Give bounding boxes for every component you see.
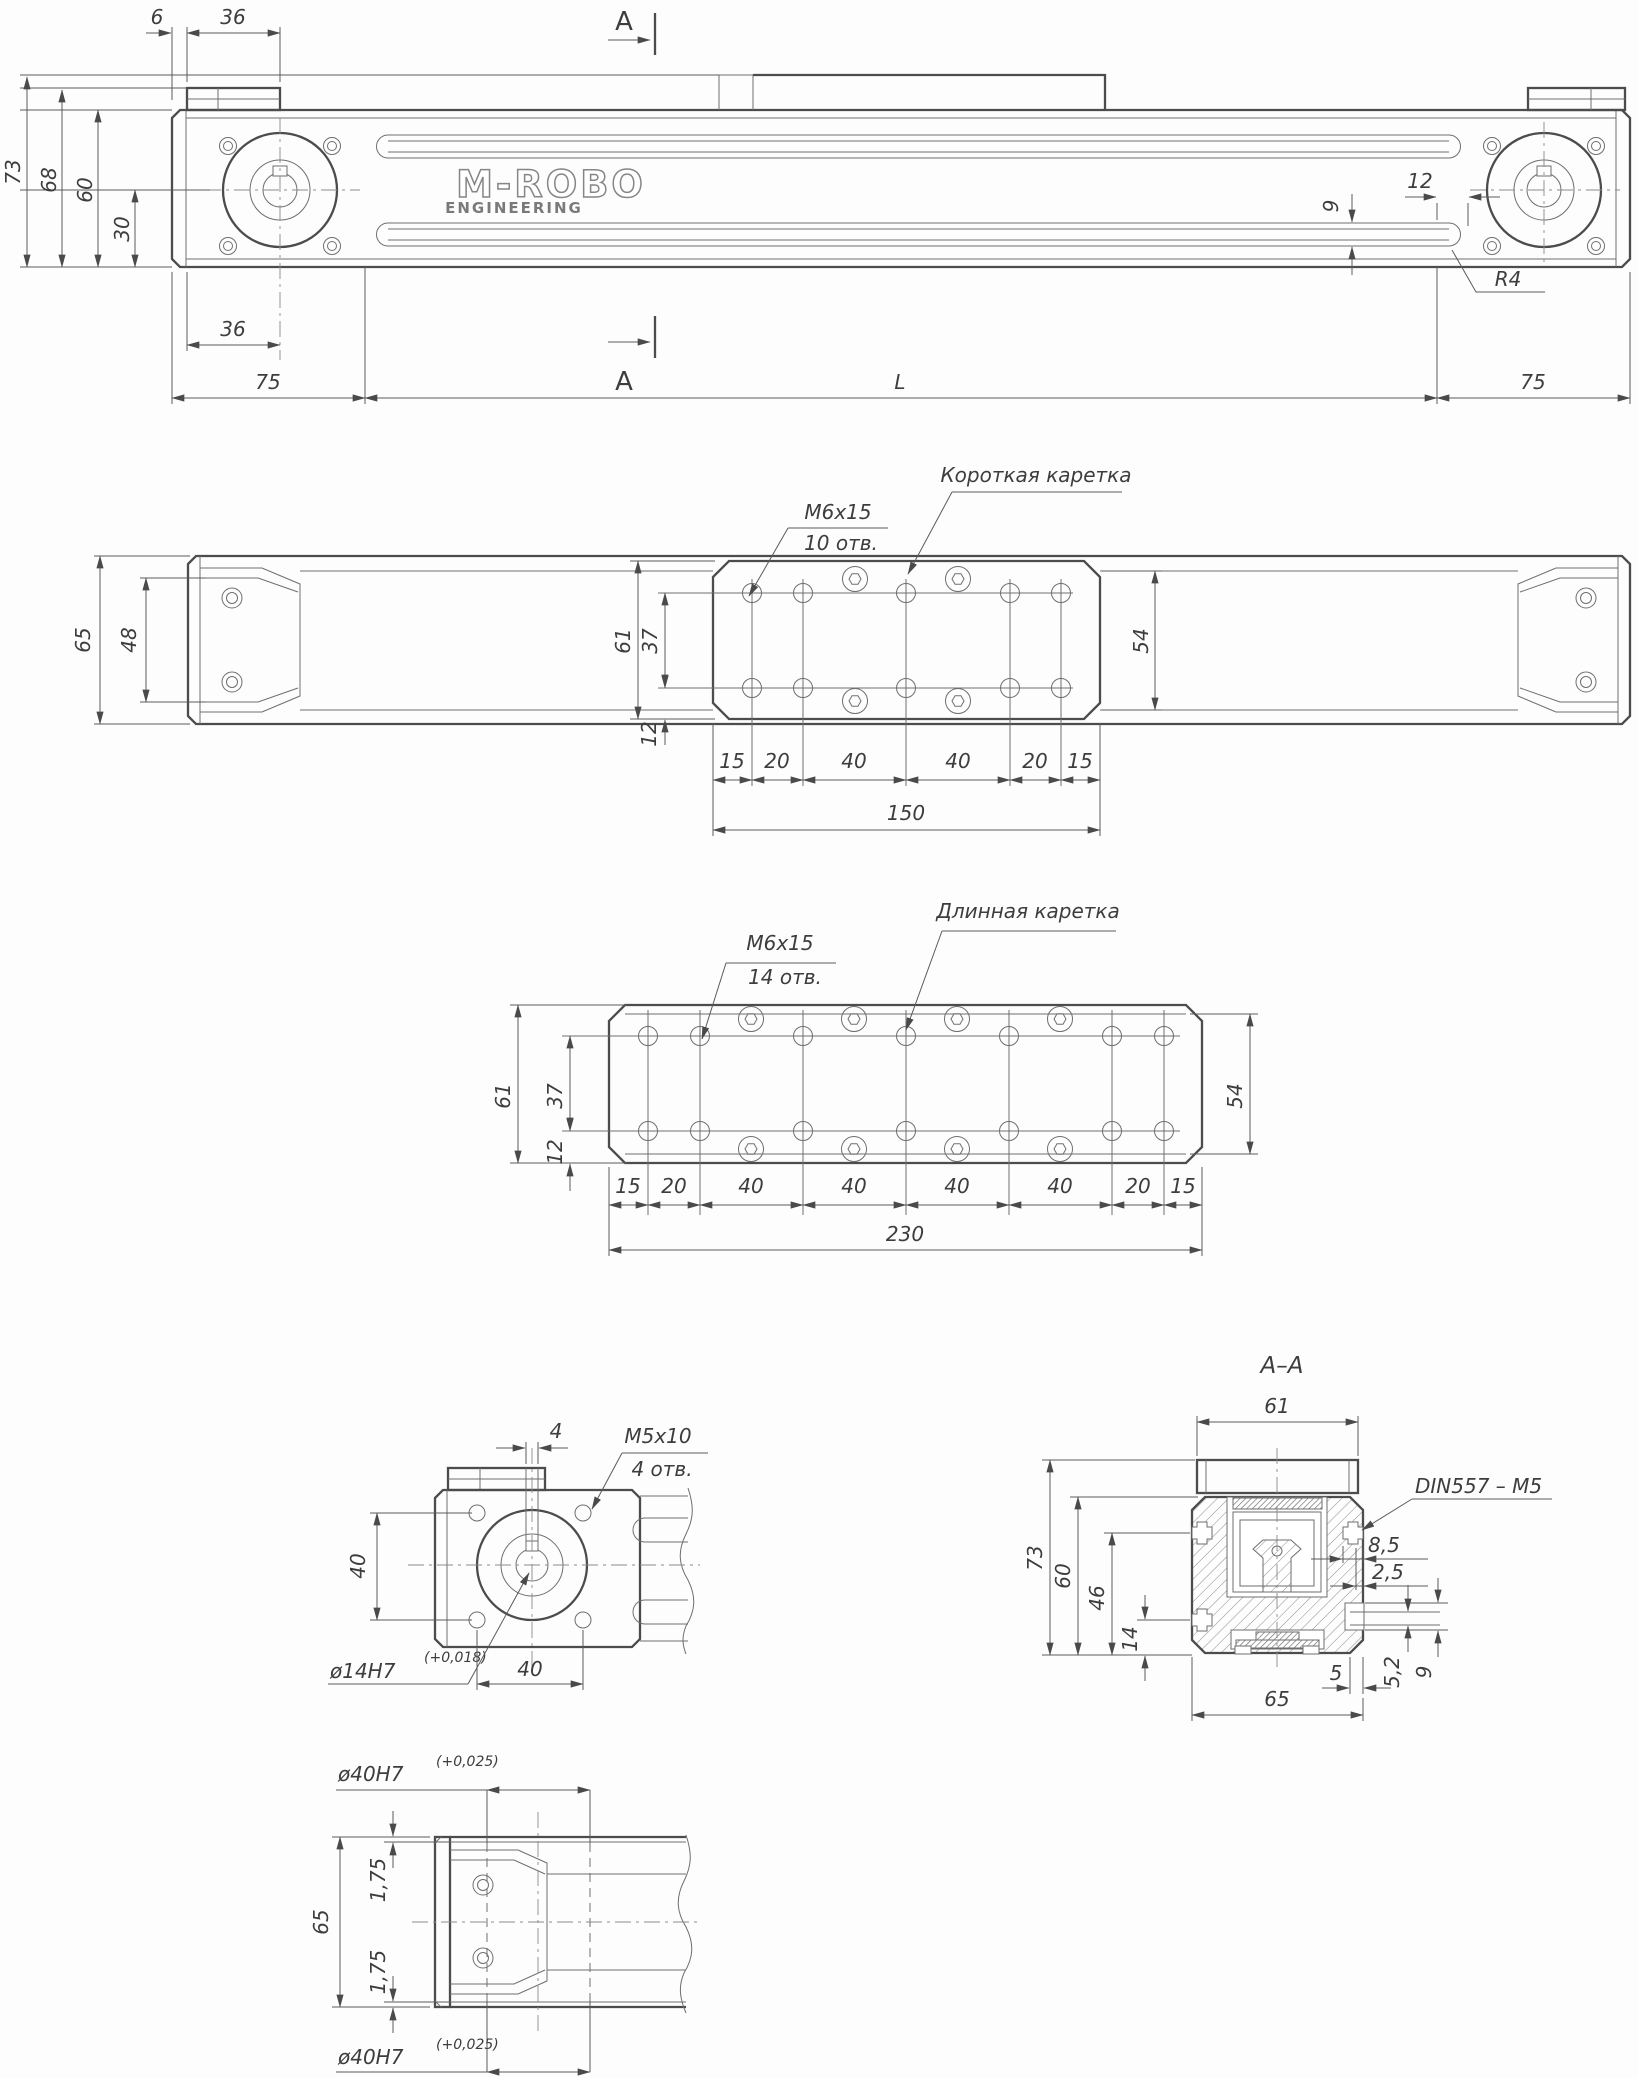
label-4-holes: 4 отв. [631, 1457, 692, 1481]
dim-37-long: 37 [543, 1083, 567, 1109]
label-bore-14: ø14H7 [329, 1659, 396, 1683]
dim-60-sec: 60 [1051, 1563, 1075, 1588]
belt-slot-bottom [377, 223, 1461, 246]
chain-20b: 20 [1022, 749, 1047, 773]
dim-52-sec: 5,2 [1380, 1656, 1404, 1688]
plan-short-dimensions: 65 48 61 37 12 54 15 20 40 40 20 15 150 [71, 556, 1155, 830]
dim-73-sec: 73 [1023, 1545, 1047, 1570]
section-mark-top: A [608, 7, 655, 55]
front-dimensions: 6 36 73 68 60 30 36 75 L 75 12 9 R4 [1, 5, 1630, 398]
lchain-20b: 20 [1125, 1174, 1150, 1198]
end-cap-right [1518, 568, 1618, 712]
dim-5-sec: 5 [1330, 1661, 1343, 1685]
chain-40a: 40 [841, 749, 866, 773]
dim-9: 9 [1319, 200, 1343, 213]
dim-R4: R4 [1495, 267, 1522, 291]
belt-slot-top [377, 135, 1461, 158]
idler-end-view: 65 1,75 1,75 ø40H7 (+0,025) ø40H7 (+0,02… [309, 1754, 700, 2072]
lchain-40a: 40 [738, 1174, 763, 1198]
break-line [680, 1488, 694, 1654]
dim-12: 12 [637, 721, 661, 746]
dim-65-idler: 65 [309, 1909, 333, 1934]
long-carriage-dimensions: 61 37 12 54 15 20 40 40 40 40 20 15 230 [491, 1005, 1250, 1250]
drawing-sheet: M-ROBO ENGINEERING A A [0, 0, 1638, 2078]
label-bore-40-top-tol: (+0,025) [436, 1754, 499, 1770]
dim-65-sec: 65 [1264, 1687, 1289, 1711]
label-m5x10: M5x10 [624, 1424, 691, 1448]
end-cap-left [200, 568, 300, 712]
dim-6: 6 [151, 5, 164, 29]
dim-65: 65 [71, 627, 95, 652]
label-long-carriage: Длинная каретка [935, 899, 1120, 923]
front-extension-lines [20, 27, 1630, 404]
lchain-15b: 15 [1170, 1174, 1195, 1198]
chain-20a: 20 [764, 749, 789, 773]
label-m6x15: M6x15 [804, 500, 871, 524]
dim-61: 61 [611, 628, 635, 653]
long-carriage [562, 1005, 1202, 1215]
dim-54: 54 [1129, 628, 1153, 653]
label-14-holes: 14 отв. [748, 965, 822, 989]
dim-36-top: 36 [220, 5, 245, 29]
dim-25-sec: 2,5 [1372, 1560, 1404, 1584]
section-letter-bottom: A [615, 367, 633, 397]
label-din557: DIN557 – M5 [1415, 1474, 1542, 1498]
dim-175-top: 1,75 [366, 1858, 390, 1903]
lchain-40d: 40 [1047, 1174, 1072, 1198]
label-short-carriage: Короткая каретка [940, 463, 1131, 487]
section-aa-view: A–A DIN557 – M5 [1023, 1353, 1552, 1721]
din557-callout: DIN557 – M5 [1362, 1474, 1552, 1530]
dim-85-sec: 8,5 [1368, 1533, 1400, 1557]
label-m6x15-long: M6x15 [746, 931, 813, 955]
long-carriage-callouts: M6x15 14 отв. Длинная каретка [702, 899, 1120, 1039]
dim-61-long: 61 [491, 1083, 515, 1108]
lchain-40b: 40 [841, 1174, 866, 1198]
dim-12: 12 [1407, 169, 1432, 193]
dim-61-sec: 61 [1264, 1394, 1289, 1418]
cad-drawing: M-ROBO ENGINEERING A A [0, 0, 1638, 2078]
dim-48: 48 [117, 627, 141, 652]
motor-end-view: M5x10 4 отв. ø14H7 (+0,018) 4 40 40 [328, 1419, 708, 1690]
front-view: M-ROBO ENGINEERING A A [1, 5, 1630, 404]
long-carriage-view: M6x15 14 отв. Длинная каретка 61 37 12 5… [491, 899, 1258, 1256]
dim-37: 37 [638, 628, 662, 654]
short-carriage-callouts: M6x15 10 отв. Короткая каретка [749, 463, 1132, 596]
motor-end-callouts: M5x10 4 отв. ø14H7 (+0,018) [328, 1424, 708, 1684]
dim-54-long: 54 [1223, 1083, 1247, 1108]
dim-14-sec: 14 [1118, 1626, 1142, 1651]
lchain-20a: 20 [661, 1174, 686, 1198]
dim-175-bottom: 1,75 [366, 1950, 390, 1995]
section-letter-top: A [615, 7, 633, 37]
dim-4-key: 4 [550, 1419, 563, 1443]
section-mark-bottom: A [608, 316, 655, 397]
dim-60: 60 [73, 177, 97, 202]
label-bore-40-top: ø40H7 [337, 1762, 404, 1786]
dim-12-long: 12 [543, 1139, 567, 1164]
dim-230: 230 [886, 1222, 924, 1246]
dim-40-h: 40 [517, 1657, 542, 1681]
dim-75-right: 75 [1520, 370, 1545, 394]
label-bore-40-bottom-tol: (+0,025) [436, 2037, 499, 2053]
plan-view-short-carriage: M6x15 10 отв. Короткая каретка [71, 463, 1630, 836]
dim-75-left: 75 [255, 370, 280, 394]
motor-end-dimensions: 4 40 40 [346, 1419, 583, 1684]
dim-46-sec: 46 [1085, 1585, 1109, 1610]
label-10-holes: 10 отв. [804, 531, 878, 555]
break-line-idler [678, 1835, 692, 2013]
section-title: A–A [1259, 1353, 1304, 1379]
dim-40-v: 40 [346, 1553, 370, 1578]
belt-teeth-top [1233, 1498, 1322, 1509]
idler-pulley [1470, 122, 1620, 262]
chain-15b: 15 [1067, 749, 1092, 773]
dim-L: L [894, 370, 905, 394]
motor-shaft-bore [408, 1448, 700, 1668]
dim-68: 68 [37, 167, 61, 192]
chain-40b: 40 [945, 749, 970, 773]
dim-36-bottom: 36 [220, 317, 245, 341]
idler-extensions [332, 1790, 590, 2072]
dim-30: 30 [110, 216, 134, 241]
dim-9-sec: 9 [1412, 1666, 1436, 1679]
brand-subtitle: ENGINEERING [445, 199, 583, 217]
dim-150: 150 [887, 801, 925, 825]
label-bore-40-bottom: ø40H7 [337, 2045, 404, 2069]
chain-15a: 15 [719, 749, 744, 773]
lchain-40c: 40 [944, 1174, 969, 1198]
lchain-15a: 15 [615, 1174, 640, 1198]
dim-73: 73 [1, 159, 25, 184]
